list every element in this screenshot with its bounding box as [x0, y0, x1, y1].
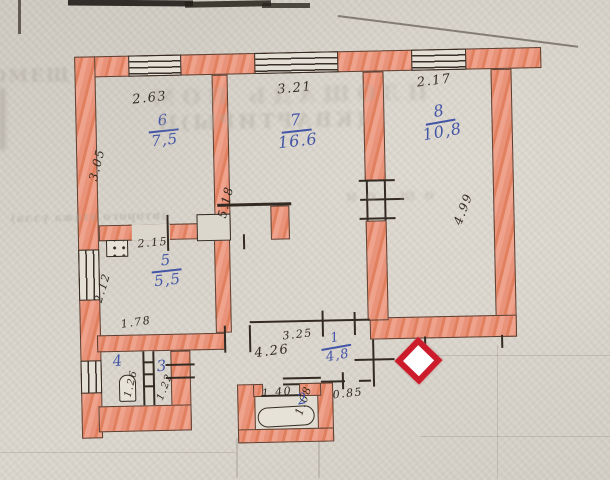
room-label-3: 3 [146, 358, 174, 378]
marker-leader-line [355, 358, 395, 361]
wall-segment [214, 238, 232, 333]
dimension-label: 4.99 [451, 191, 476, 227]
scanned-floorplan-page: 2.633.212.173.055.184.992.152.121.783.25… [0, 0, 610, 480]
diamond-logo [395, 337, 443, 385]
bleed-through-text: (второго этажа узла) [9, 209, 166, 225]
floor-plan: 2.633.212.173.055.184.992.152.121.783.25… [0, 0, 610, 480]
pencil-line [283, 377, 321, 380]
wall-segment [98, 404, 192, 432]
pencil-line [359, 380, 371, 382]
wall-segment [270, 205, 290, 239]
room-label-4: 4 [102, 352, 130, 372]
room-label-5: 55,5 [135, 250, 198, 292]
room-label-1: 14,8 [308, 327, 365, 367]
wall-segment [366, 220, 389, 320]
dimension-label: 4.26 [254, 342, 291, 361]
dimension-label: 2.15 [137, 235, 169, 251]
bleed-through-text: (КВАРТИРЫ)Н [155, 107, 366, 135]
room-area: 4,8 [311, 344, 365, 367]
bleed-through-text: ош он [337, 185, 435, 205]
window-symbol [128, 55, 181, 77]
dimension-label: 1.26 [123, 369, 140, 399]
bleed-through-text: ОМЕЩ [0, 65, 71, 88]
window-symbol [254, 51, 338, 74]
dimension-label: 0.85 [332, 385, 364, 401]
wall-segment [370, 315, 517, 340]
wall-segment [97, 333, 225, 353]
window-symbol [80, 360, 102, 393]
dimension-label: 1.78 [120, 314, 152, 331]
door-jamb-line [249, 325, 252, 352]
room-label-8: 810,8 [405, 98, 477, 147]
door-tick [359, 179, 395, 182]
dimension-tick [501, 335, 503, 348]
partition-hatch [144, 385, 154, 387]
room-area: 10,8 [408, 118, 476, 146]
bleed-through-text: ПЛОЩАДЬ ПОМ [145, 79, 428, 110]
stove-icon [106, 240, 128, 257]
pencil-line [250, 319, 370, 324]
room-area: 5,5 [137, 269, 198, 291]
room-area: 16.6 [264, 129, 331, 153]
wall-segment [238, 427, 334, 443]
wall-segment [490, 69, 517, 337]
door-tick [243, 234, 245, 249]
window-symbol [411, 49, 466, 71]
door-tick [360, 217, 396, 220]
pencil-line [372, 340, 375, 387]
